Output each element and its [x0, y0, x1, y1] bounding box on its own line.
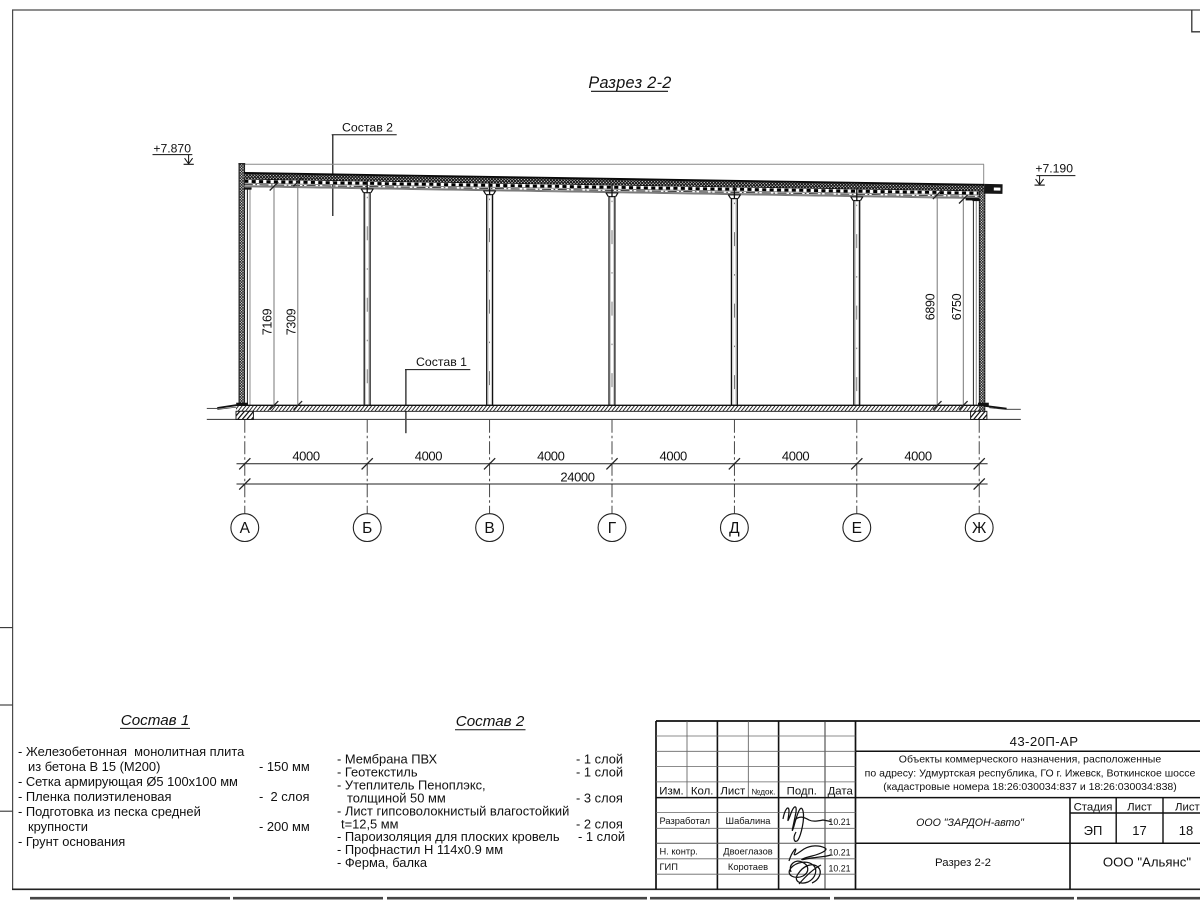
svg-text:- Подготовка из песка средней: - Подготовка из песка средней — [18, 804, 201, 819]
svg-text:- Пленка полиэтиленовая: - Пленка полиэтиленовая — [18, 789, 171, 804]
svg-text:Коротаев: Коротаев — [728, 862, 768, 872]
svg-text:- Сетка армирующая Ø5 100х100: - Сетка армирующая Ø5 100х100 мм — [18, 774, 238, 789]
svg-text:крупности: крупности — [28, 819, 88, 834]
svg-text:Разрез 2-2: Разрез 2-2 — [935, 857, 991, 869]
svg-text:18: 18 — [1179, 823, 1193, 838]
svg-text:24000: 24000 — [560, 470, 594, 485]
svg-text:Н. контр.: Н. контр. — [660, 847, 698, 857]
svg-text:Разрез 2-2: Разрез 2-2 — [588, 74, 671, 92]
svg-text:- 200 мм: - 200 мм — [259, 819, 310, 834]
svg-text:№док.: №док. — [751, 787, 775, 796]
svg-text:- Железобетонная монолитная п: - Железобетонная монолитная плита — [18, 744, 245, 759]
svg-text:Г: Г — [608, 520, 617, 537]
svg-text:Изм.: Изм. — [659, 785, 683, 797]
svg-text:- 150 мм: - 150 мм — [259, 759, 310, 774]
svg-text:4000: 4000 — [415, 449, 442, 464]
svg-text:17: 17 — [1132, 823, 1146, 838]
svg-text:Ж: Ж — [972, 520, 987, 537]
svg-text:Стадия: Стадия — [1074, 801, 1113, 813]
svg-text:ЭП: ЭП — [1084, 823, 1103, 838]
svg-text:10.21: 10.21 — [828, 863, 850, 873]
svg-text:Состав 2: Состав 2 — [456, 713, 525, 730]
svg-text:- 1 слой: - 1 слой — [576, 764, 623, 779]
svg-text:Кол.: Кол. — [691, 785, 714, 797]
svg-text:- Ферма, балка: - Ферма, балка — [337, 855, 428, 870]
svg-text:4000: 4000 — [904, 449, 931, 464]
svg-text:- 3 слоя: - 3 слоя — [576, 790, 623, 805]
svg-text:Шабалина: Шабалина — [726, 816, 772, 826]
svg-text:+7.190: +7.190 — [1035, 161, 1073, 175]
svg-text:- 1 слой: - 1 слой — [578, 829, 625, 844]
svg-text:Лист: Лист — [1127, 801, 1153, 813]
svg-text:из бетона В 15 (М200): из бетона В 15 (М200) — [28, 759, 160, 774]
svg-text:Двоеглазов: Двоеглазов — [723, 847, 772, 857]
svg-text:ООО "ЗАРДОН-авто": ООО "ЗАРДОН-авто" — [916, 817, 1025, 829]
svg-text:10.21: 10.21 — [828, 817, 850, 827]
svg-text:Лист: Лист — [720, 785, 746, 797]
svg-text:по адресу: Удмуртская республи: по адресу: Удмуртская республика, ГО г. … — [865, 767, 1196, 779]
svg-text:Разработал: Разработал — [660, 816, 711, 826]
svg-text:6750: 6750 — [950, 293, 964, 320]
svg-text:ГИП: ГИП — [660, 862, 678, 872]
svg-text:Состав 2: Состав 2 — [342, 121, 393, 135]
svg-text:А: А — [240, 520, 251, 537]
svg-text:4000: 4000 — [537, 449, 564, 464]
svg-text:Дата: Дата — [828, 785, 854, 797]
svg-text:4000: 4000 — [782, 449, 809, 464]
svg-text:- 2 слоя: - 2 слоя — [259, 789, 309, 804]
svg-text:6890: 6890 — [924, 293, 938, 320]
svg-text:Листов: Листов — [1175, 801, 1200, 813]
svg-text:Д: Д — [729, 520, 740, 537]
svg-text:43-20П-АР: 43-20П-АР — [1010, 734, 1079, 749]
svg-text:4000: 4000 — [660, 449, 687, 464]
svg-text:10.21: 10.21 — [828, 848, 850, 858]
svg-text:Состав 1: Состав 1 — [121, 712, 190, 729]
svg-text:Объекты коммерческого назначен: Объекты коммерческого назначения, распол… — [899, 753, 1162, 765]
svg-text:7169: 7169 — [261, 308, 275, 335]
svg-text:4000: 4000 — [292, 449, 319, 464]
svg-text:В: В — [484, 520, 494, 537]
svg-text:(кадастровые номера 18:26:0300: (кадастровые номера 18:26:030034:837 и 1… — [883, 781, 1177, 793]
svg-text:- Грунт основания: - Грунт основания — [18, 834, 125, 849]
svg-text:Б: Б — [362, 520, 372, 537]
svg-text:Состав 1: Состав 1 — [416, 355, 467, 369]
svg-text:Подп.: Подп. — [787, 785, 817, 797]
svg-text:Е: Е — [852, 520, 862, 537]
svg-text:ООО "Альянс": ООО "Альянс" — [1103, 855, 1191, 870]
svg-text:+7.870: +7.870 — [153, 141, 191, 155]
svg-text:7309: 7309 — [284, 308, 298, 335]
